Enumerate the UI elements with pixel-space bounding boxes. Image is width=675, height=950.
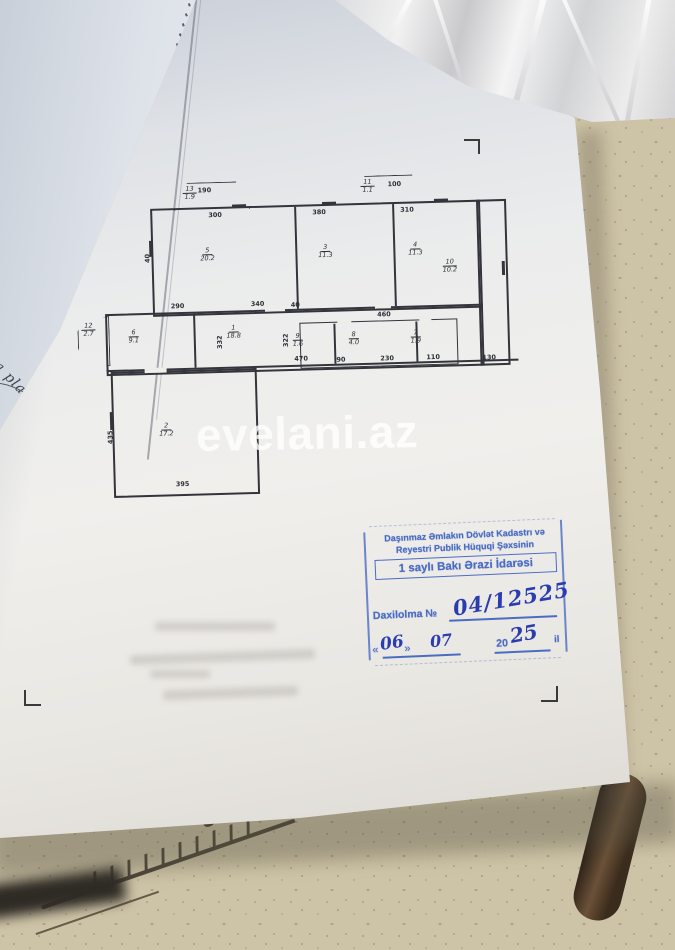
corner-mark-top-right: [478, 139, 480, 154]
room-area: 2.7: [75, 331, 101, 339]
door-opening: [419, 317, 431, 321]
window-mark: [434, 199, 448, 202]
film-crease: [560, 0, 621, 123]
photo-of-floorplan-document: { "watermark": { "text": "evelani.az" },…: [0, 0, 675, 900]
dimension-label: 332: [216, 335, 224, 349]
dimension-label: 310: [400, 205, 414, 213]
window-mark: [322, 202, 336, 205]
stamp-entry-label: Daxilolma №: [373, 607, 438, 622]
stamp-office-name: 1 saylı Bakı Ərazi İdarəsi: [374, 552, 557, 580]
room-label: 217.2: [148, 422, 184, 439]
door-opening: [145, 367, 167, 373]
stamp-quote-open: «: [372, 644, 379, 656]
film-crease: [623, 0, 652, 133]
dimension-label: 230: [380, 354, 394, 362]
room-label: 311.3: [307, 243, 343, 260]
bleed-through-text: [150, 670, 210, 678]
handwritten-month: 07: [429, 630, 453, 651]
dimension-label: 40: [143, 254, 151, 263]
edge-mark: [185, 13, 188, 16]
room-label: 520.2: [189, 247, 225, 264]
stamp-quote-close: »: [404, 643, 411, 655]
room-area: 1.9: [402, 338, 430, 346]
dimension-label: 380: [312, 208, 326, 216]
balcony-label: 111.1: [353, 178, 381, 195]
room-label: 411.3: [397, 241, 433, 258]
room-label: 84.0: [340, 331, 368, 348]
dimension-label: 40: [291, 301, 300, 309]
stamp-year-underline: [495, 649, 551, 653]
window-mark: [232, 204, 246, 207]
room-area: 1.1: [354, 187, 382, 195]
door-opening: [337, 319, 351, 323]
stamp-year-prefix: 20: [496, 637, 508, 649]
room-area: 20.2: [189, 255, 225, 263]
handwritten-entry-number: 04/12525: [451, 577, 571, 621]
room-area: 17.2: [148, 430, 184, 438]
edge-mark: [182, 23, 184, 26]
balcony-label: 122.7: [75, 322, 101, 339]
window-mark: [502, 261, 505, 275]
bleed-through-text: [155, 622, 275, 631]
corner-mark-bottom-left: [24, 704, 41, 706]
handwritten-day: 06: [379, 632, 405, 655]
dimension-label: 100: [387, 180, 401, 188]
dimension-label: 190: [197, 186, 211, 194]
room-area: 11.3: [307, 252, 343, 260]
room-area: 9.1: [116, 337, 152, 345]
room-label: 69.1: [115, 329, 151, 346]
corner-mark-bottom-right: [541, 700, 558, 702]
dimension-label: 340: [251, 300, 265, 308]
door-opening: [375, 303, 391, 308]
dimension-label: 470: [294, 355, 308, 363]
dimension-label: 460: [377, 310, 391, 318]
bleed-through-text: [130, 649, 315, 665]
dimension-label: 90: [336, 355, 345, 363]
dimension-label: 290: [171, 302, 185, 310]
room-label: 71.9: [402, 329, 430, 346]
room-area: 4.0: [340, 339, 368, 347]
dimension-label: 110: [426, 353, 440, 361]
room-label: 1010.2: [436, 258, 464, 275]
registry-stamp: Daşınmaz Əmlakın Dövlət Kadastrı və Reye…: [363, 518, 571, 669]
window-mark: [110, 412, 114, 430]
dimension-label: 435: [106, 430, 114, 444]
floor-plan: 520.2 311.3 411.3 69.1 118.8 91.6 84.0 7…: [81, 169, 570, 522]
stamp-date-underline: [383, 653, 461, 658]
bleed-through-text: [163, 686, 298, 701]
room-area: 1.9: [176, 194, 204, 202]
room-area: 10.2: [436, 267, 464, 275]
handwritten-year: 25: [508, 619, 540, 648]
dimension-label: 395: [176, 480, 190, 488]
door-opening: [265, 306, 285, 312]
room-area: 11.3: [397, 249, 433, 257]
dimension-label: 300: [208, 211, 222, 219]
edge-mark: [188, 3, 191, 6]
dimension-label: 130: [482, 353, 496, 361]
stamp-year-suffix: il: [554, 634, 560, 645]
watermark-text: evelani.az: [196, 404, 419, 462]
dimension-label: 322: [282, 333, 290, 347]
